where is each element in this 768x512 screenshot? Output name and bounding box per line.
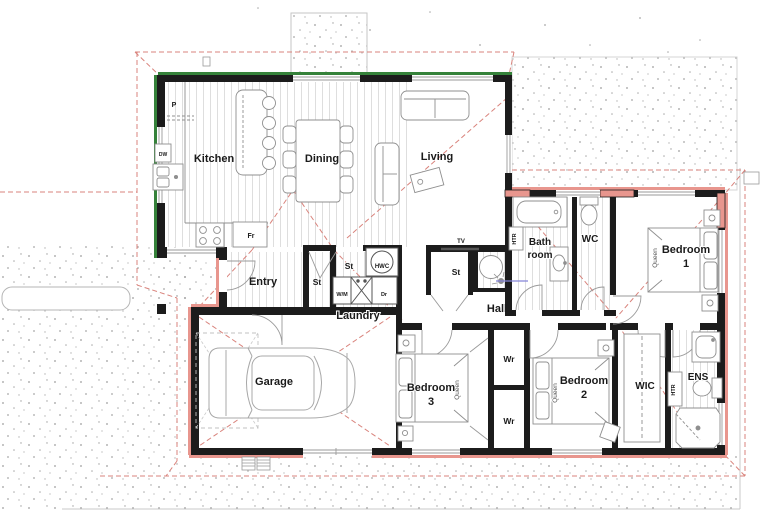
vent xyxy=(203,57,210,66)
label-kitchen: Kitchen xyxy=(194,153,235,165)
label-laundry: Laundry xyxy=(336,310,380,322)
toilet xyxy=(580,197,598,225)
meter-box xyxy=(744,172,759,184)
entry-porch xyxy=(166,258,219,307)
label-storage-entry: St xyxy=(313,277,322,287)
label-bedroom2-1: Bedroom xyxy=(560,375,609,387)
label-heater-bath: HTR xyxy=(512,233,518,244)
label-dining: Dining xyxy=(305,153,339,165)
label-queen-bed1: Queen xyxy=(652,248,659,268)
garage-door xyxy=(303,448,372,455)
floor-plan-drawing: Kitchen Dining Living Bath room WC Bedro… xyxy=(0,0,768,512)
label-dishwasher: DW xyxy=(159,152,168,158)
label-tv: TV xyxy=(457,239,465,245)
label-storage-mid: St xyxy=(345,261,354,271)
label-bedroom1-2: 1 xyxy=(683,258,689,270)
bedroom1-door xyxy=(613,296,641,324)
hwc-cylinder xyxy=(366,248,398,276)
wardrobe-doors xyxy=(470,338,488,440)
label-wc: WC xyxy=(582,234,599,245)
laundry-bench xyxy=(333,277,397,304)
hall-storage-doors xyxy=(431,295,468,311)
label-bedroom2-2: 2 xyxy=(581,389,587,401)
stove xyxy=(196,223,224,247)
bedroom2-door xyxy=(530,330,558,358)
floor-plan: Kitchen Dining Living Bath room WC Bedro… xyxy=(0,0,768,512)
left-driveway xyxy=(0,243,188,512)
top-patio xyxy=(291,13,367,75)
bathtub xyxy=(513,197,567,227)
sofa-long xyxy=(401,91,469,120)
label-dryer: Dr xyxy=(381,292,388,298)
coffee-table xyxy=(410,167,444,192)
label-queen-bed3: Queen xyxy=(454,380,461,400)
kitchen-sink xyxy=(153,164,183,190)
label-pantry: P xyxy=(172,102,177,109)
label-hall: Hall xyxy=(487,303,507,315)
label-washing-machine: W/M xyxy=(336,292,348,298)
label-garage: Garage xyxy=(255,376,293,388)
label-bedroom3-2: 3 xyxy=(428,396,434,408)
sofa-small xyxy=(375,143,399,205)
label-bathroom-2: room xyxy=(528,250,553,261)
garden-strip xyxy=(2,287,130,310)
label-bedroom3-1: Bedroom xyxy=(407,382,456,394)
label-bedroom1-1: Bedroom xyxy=(662,244,711,256)
label-storage-hall: St xyxy=(452,267,461,277)
bed2-queen xyxy=(533,340,620,442)
label-wardrobe-1: Wr xyxy=(503,354,515,364)
porch-post xyxy=(157,304,166,314)
label-queen-bed2: Queen xyxy=(552,383,559,403)
front-door-gap xyxy=(219,260,227,292)
label-wic: WIC xyxy=(635,381,654,392)
label-wardrobe-2: Wr xyxy=(503,416,515,426)
label-hwc: HWC xyxy=(375,264,390,270)
label-bathroom-1: Bath xyxy=(529,237,551,248)
label-entry: Entry xyxy=(249,276,278,288)
bath-vanity xyxy=(550,247,568,281)
garage-internal-door xyxy=(252,315,282,345)
label-ens: ENS xyxy=(688,372,709,383)
green-edge-top xyxy=(158,72,512,75)
label-fridge: Fr xyxy=(248,233,255,240)
label-heater-ens: HTR xyxy=(671,384,677,395)
label-living: Living xyxy=(421,151,453,163)
